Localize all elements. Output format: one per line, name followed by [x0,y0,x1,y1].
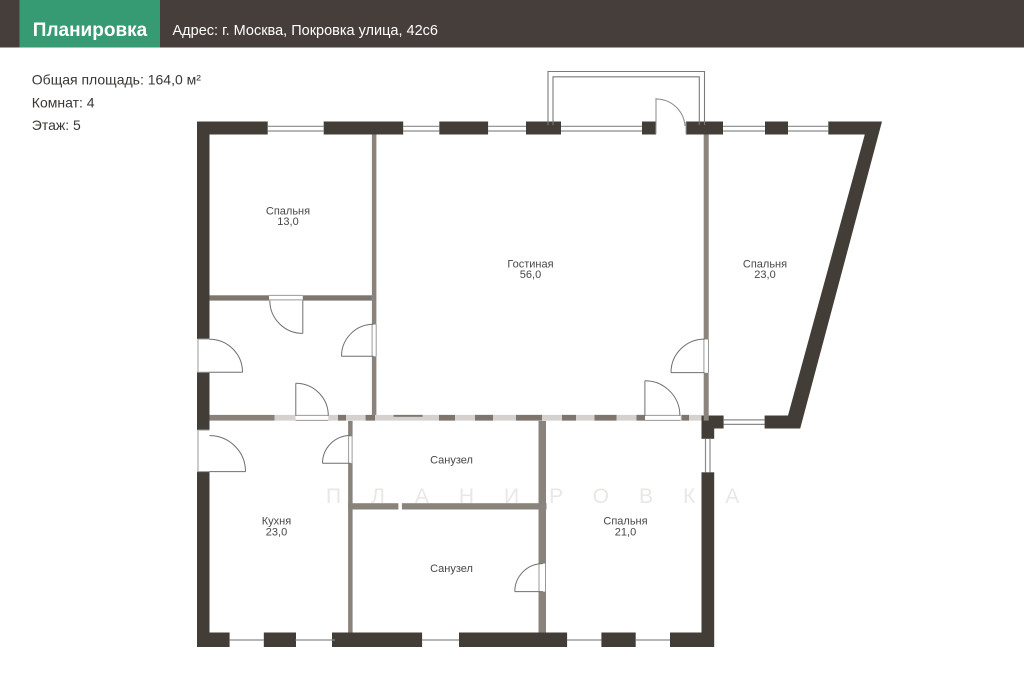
svg-text:Адрес: г. Москва, Покровка ули: Адрес: г. Москва, Покровка улица, 42с6 [173,23,438,39]
svg-text:Санузел: Санузел [430,455,473,467]
svg-text:Общая площадь: 164,0 м²: Общая площадь: 164,0 м² [32,72,201,88]
svg-text:Комнат: 4: Комнат: 4 [32,95,95,111]
svg-text:21,0: 21,0 [615,527,636,539]
svg-text:Этаж: 5: Этаж: 5 [32,117,81,133]
svg-text:23,0: 23,0 [754,269,775,281]
svg-text:Планировка: Планировка [33,20,148,41]
svg-text:23,0: 23,0 [266,527,287,539]
svg-text:13,0: 13,0 [277,216,298,228]
svg-text:Санузел: Санузел [430,563,473,575]
svg-text:56,0: 56,0 [520,269,541,281]
